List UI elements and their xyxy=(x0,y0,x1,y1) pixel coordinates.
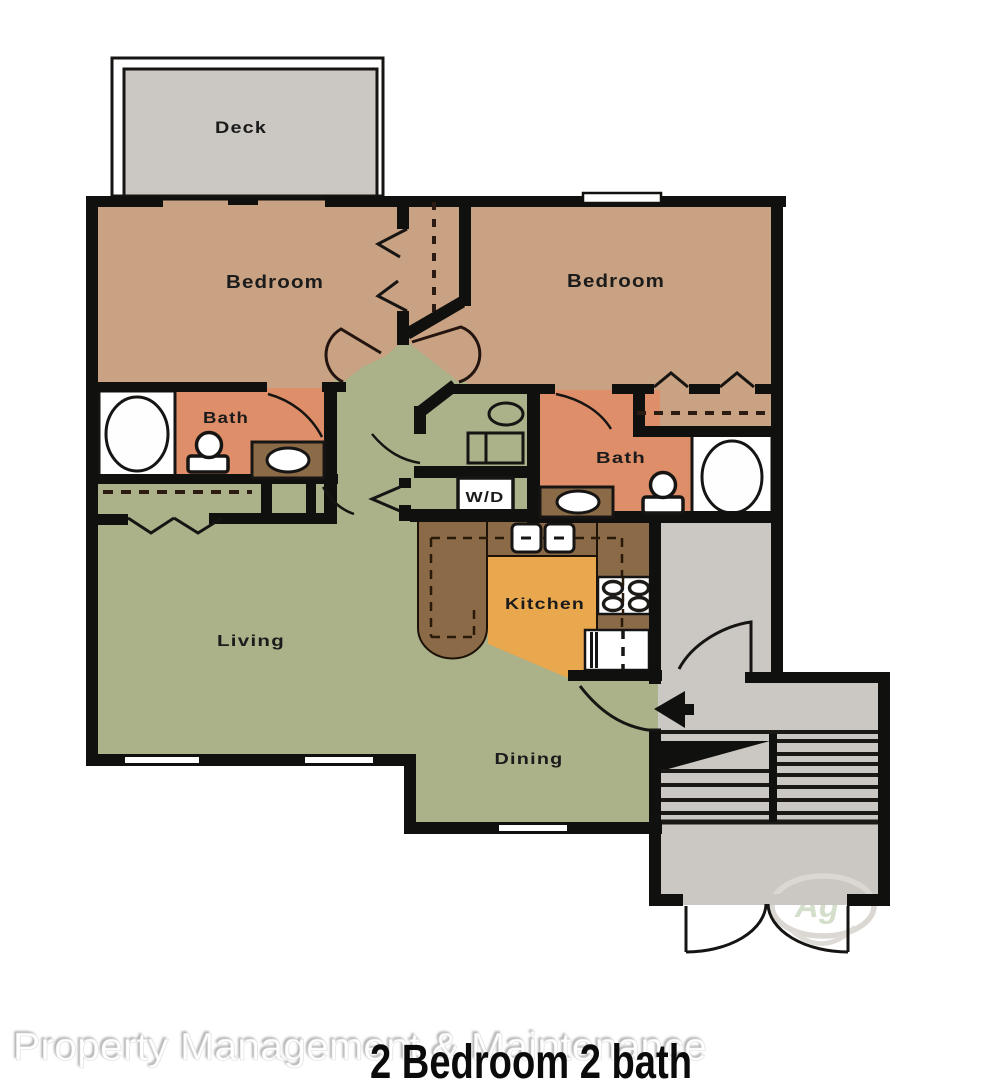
svg-text:Ag: Ag xyxy=(794,887,839,924)
svg-text:Living: Living xyxy=(217,633,285,650)
svg-text:Bath: Bath xyxy=(596,450,646,467)
svg-text:2 Bedroom 2 bath: 2 Bedroom 2 bath xyxy=(370,1036,692,1080)
svg-text:Deck: Deck xyxy=(215,118,267,137)
svg-text:Dining: Dining xyxy=(495,751,564,768)
svg-text:Bedroom: Bedroom xyxy=(226,272,324,292)
svg-text:W/D: W/D xyxy=(466,489,505,506)
svg-text:Bedroom: Bedroom xyxy=(567,271,665,291)
svg-text:Kitchen: Kitchen xyxy=(505,596,585,613)
svg-text:Bath: Bath xyxy=(203,410,249,427)
